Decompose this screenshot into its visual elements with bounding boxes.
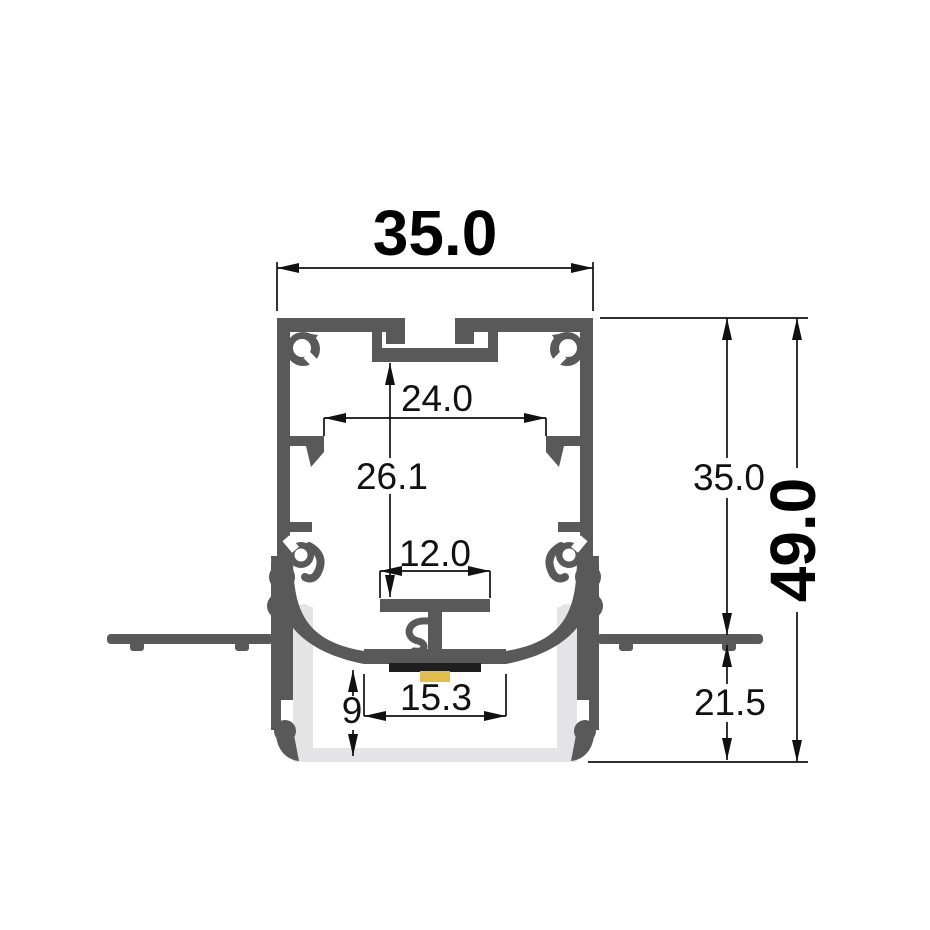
leg-bump-left-1 [269, 564, 295, 590]
dim-overall-height-label: 49.0 [757, 478, 829, 603]
shelf-stem [428, 612, 442, 652]
dim-shelf-width-label: 12.0 [399, 533, 471, 574]
drawing-canvas: 35.0 24.0 26.1 12.0 15.3 [0, 0, 930, 930]
slot-floor [372, 348, 498, 362]
leg-bump-left-2 [267, 593, 293, 619]
flange-tab-right-1 [619, 642, 633, 651]
arrow-left [324, 413, 346, 423]
arrow-down [722, 613, 732, 635]
dim-inner-clip-width-label: 24.0 [401, 378, 473, 419]
flange-tab-left-1 [130, 642, 144, 651]
arrow-down [722, 738, 732, 760]
ledge-lower-right [558, 522, 580, 532]
dim-line [380, 571, 490, 598]
top-wall-right [455, 318, 593, 332]
arrow-left [277, 263, 299, 273]
arrow-left [364, 711, 386, 721]
foot-plate [364, 649, 506, 664]
arrow-up [722, 318, 732, 340]
leg-bump-right-1 [575, 564, 601, 590]
ledge-lower-left [290, 522, 312, 532]
slot-wall-right [488, 332, 498, 349]
dim-opening-width: 15.3 [364, 674, 506, 721]
top-wall-left [277, 318, 405, 332]
ledge-upper-left [290, 436, 324, 446]
arrow-right [484, 711, 506, 721]
dim-diffuser-depth: 9 [342, 670, 363, 756]
slot-tab-right [455, 332, 474, 344]
slot-tab-left [386, 332, 405, 344]
dim-overall-height: 49.0 [757, 318, 829, 762]
arrow-up [792, 318, 802, 340]
dim-inner-clip-width: 24.0 [324, 378, 546, 436]
flange-tab-right-2 [722, 642, 736, 651]
dim-overall-width-label: 35.0 [373, 197, 498, 269]
arrow-up [385, 363, 395, 385]
arrow-up [348, 670, 358, 692]
dim-below-flange: 21.5 [588, 645, 808, 762]
dim-below-flange-label: 21.5 [694, 682, 766, 723]
profile-holes [282, 339, 587, 562]
flange-tab-left-2 [235, 642, 249, 651]
dim-diffuser-depth-label: 9 [342, 690, 363, 731]
ledge-hook-right [546, 446, 564, 467]
clip-hole-right [563, 549, 576, 562]
led-pcb [389, 663, 481, 672]
ext-lines [277, 262, 593, 311]
dim-recess-depth-label: 35.0 [693, 457, 765, 498]
arrow-down [385, 575, 395, 597]
dim-overall-width: 35.0 [277, 197, 593, 311]
dim-line [324, 418, 546, 436]
dim-shelf-width: 12.0 [380, 533, 490, 598]
ledge-hook-left [306, 446, 324, 467]
stem-s-hook [409, 621, 428, 651]
clip-hole-left [295, 549, 308, 562]
dim-opening-width-label: 15.3 [400, 677, 472, 718]
slot-wall-left [372, 332, 382, 349]
arrow-right [468, 566, 490, 576]
pcb-shelf [380, 599, 490, 612]
dimensions: 35.0 24.0 26.1 12.0 15.3 [277, 197, 829, 762]
arrow-right [571, 263, 593, 273]
ledge-upper-right [546, 436, 580, 446]
dim-inner-height-label: 26.1 [356, 456, 428, 497]
arrow-right [524, 413, 546, 423]
profile-drawing: 35.0 24.0 26.1 12.0 15.3 [0, 0, 930, 930]
leg-bump-right-2 [577, 593, 603, 619]
arrow-down [792, 740, 802, 762]
